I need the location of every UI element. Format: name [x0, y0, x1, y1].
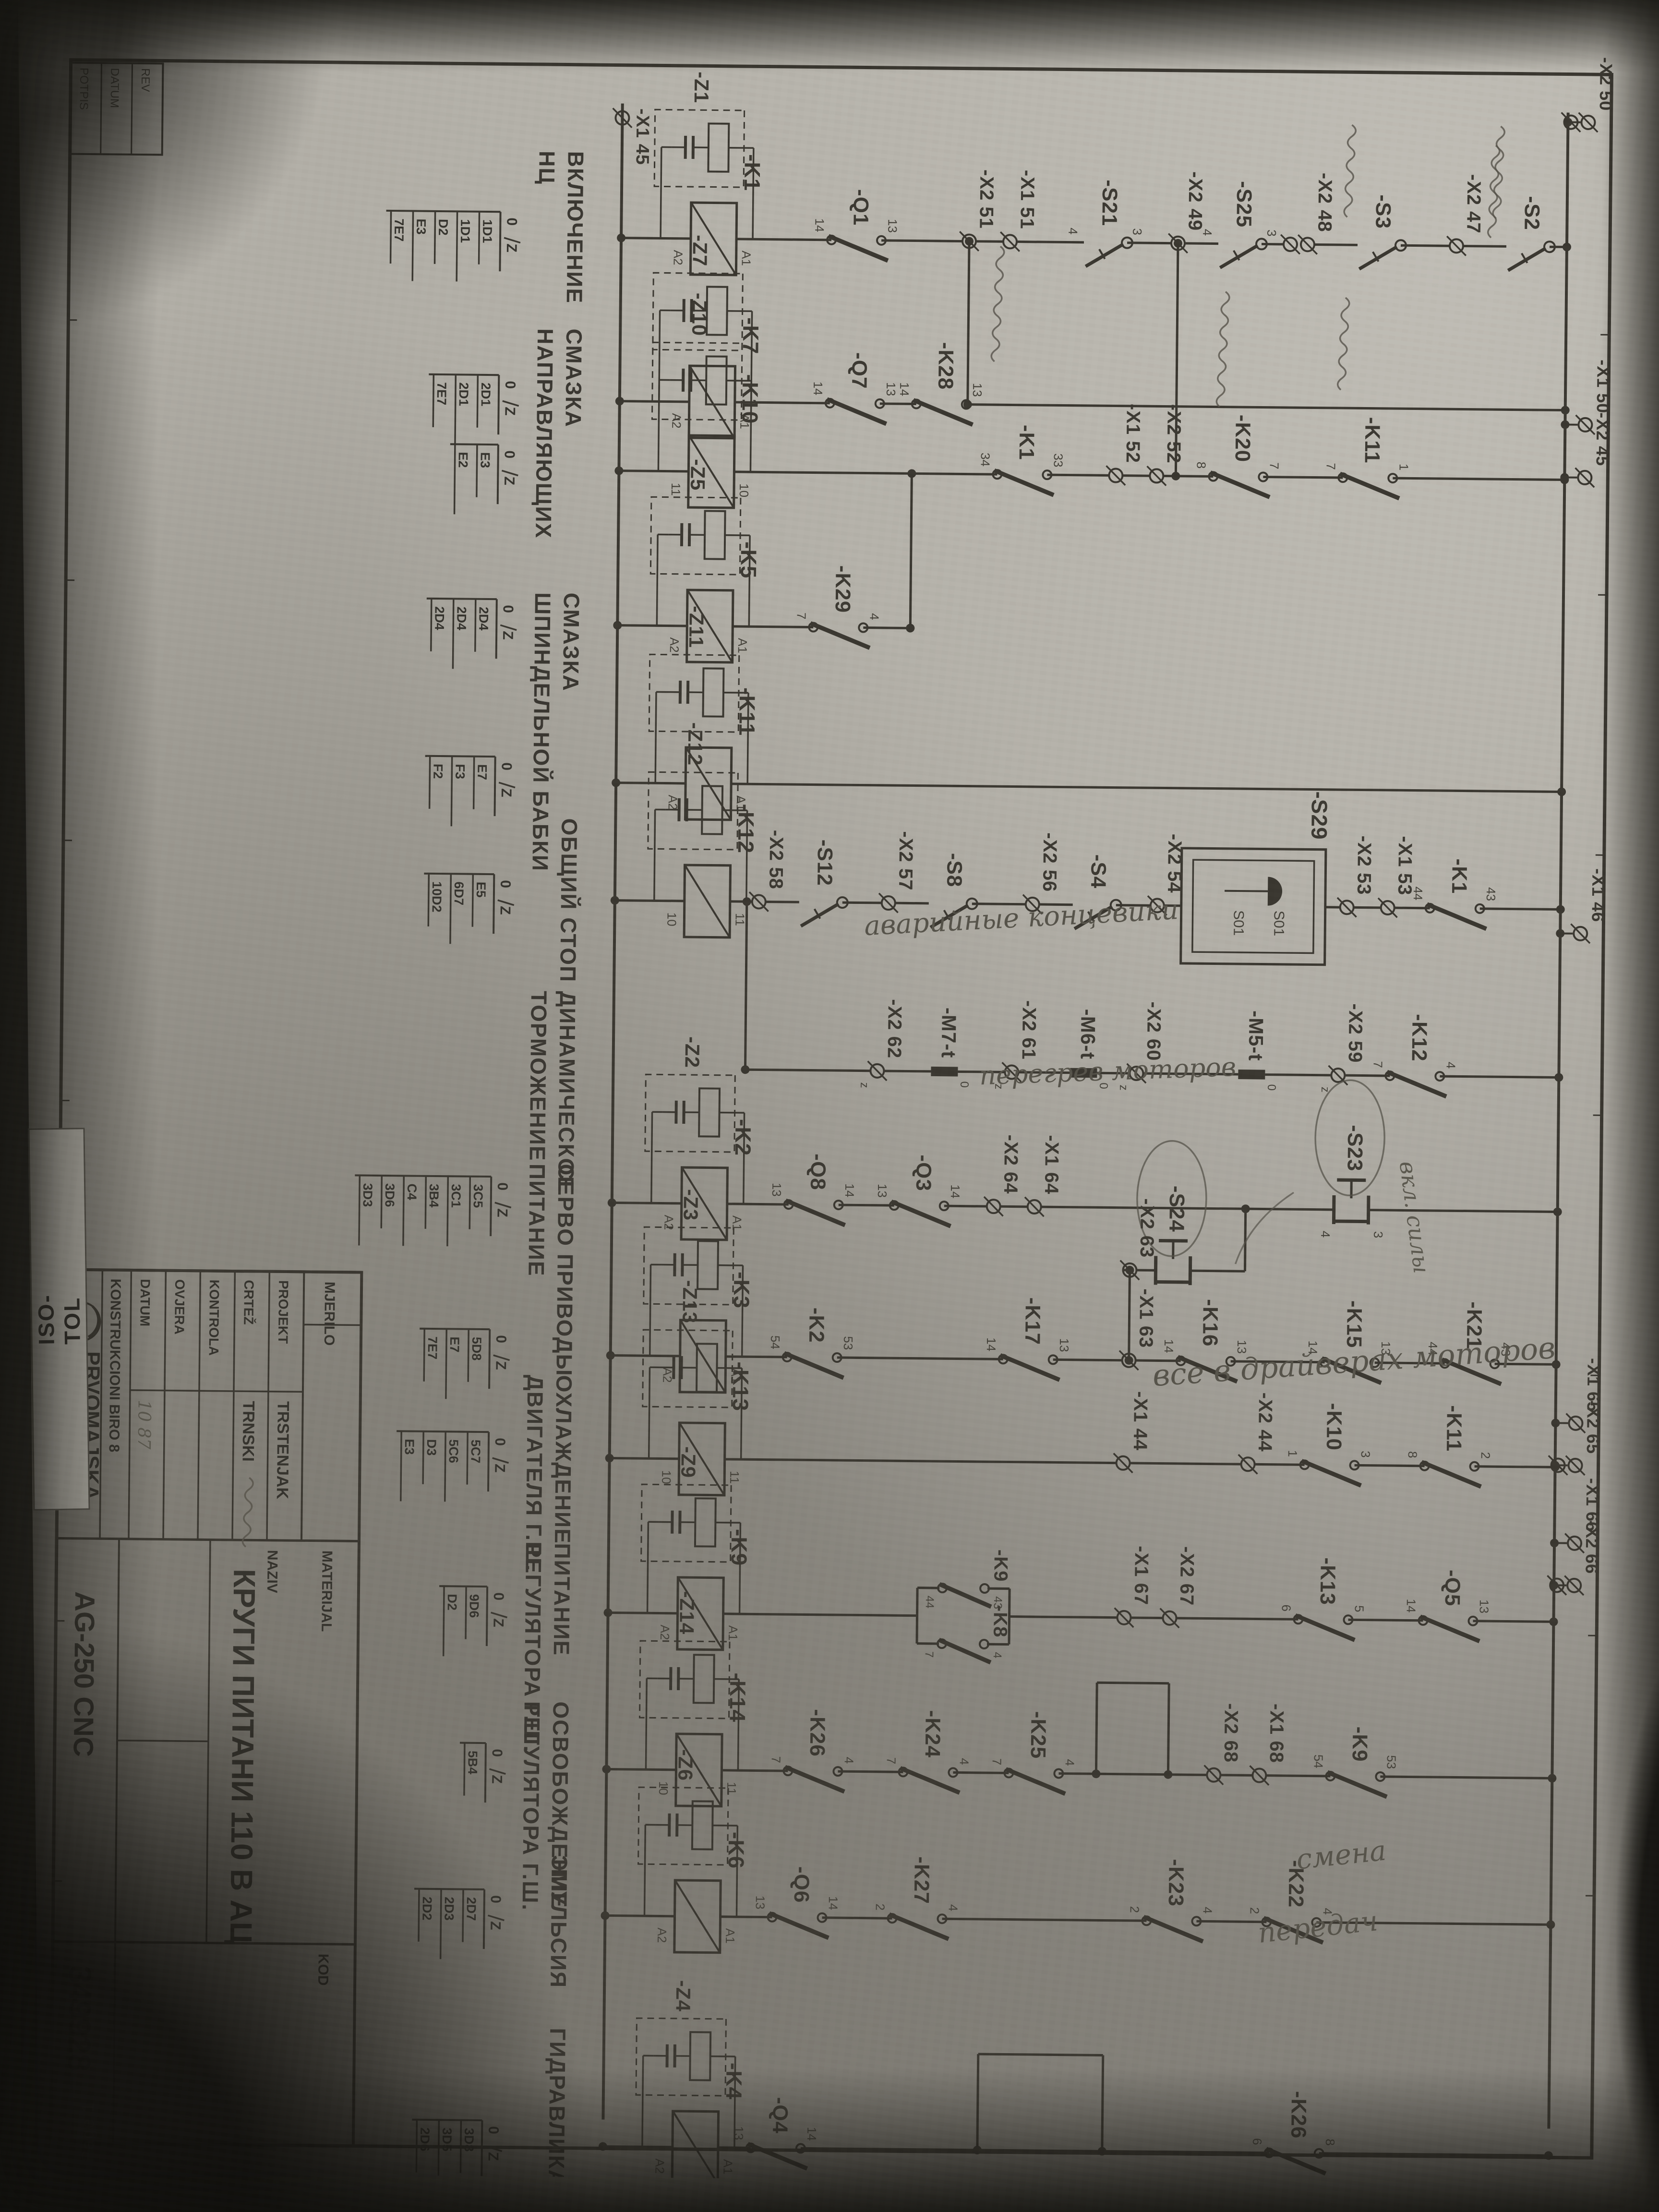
- xref-entry: 2D4: [432, 606, 446, 630]
- wire: [163, 1271, 166, 1539]
- wire: [130, 1390, 303, 1392]
- wire: [1380, 1777, 1552, 1778]
- pin-number: 4: [842, 1757, 856, 1764]
- xref-entry: 1D1: [458, 219, 472, 243]
- junction-dot: [1551, 1419, 1560, 1427]
- pin-number: 7: [923, 1651, 936, 1658]
- pin-number: 5: [1352, 1605, 1367, 1612]
- xref-entry: 3D3: [361, 1183, 375, 1207]
- wire: [450, 444, 498, 445]
- terminal-label: -X2 48: [1314, 173, 1335, 232]
- junction-dot: [606, 1351, 615, 1359]
- wire: [493, 1458, 509, 1463]
- terminal-label: -X2 61: [1018, 1000, 1040, 1060]
- wire: [1220, 1775, 1252, 1776]
- wire: [1047, 475, 1109, 475]
- component-label: -S12: [813, 840, 837, 886]
- xref-entry: 3C1: [449, 1184, 463, 1208]
- component-label: -K11: [1360, 417, 1384, 463]
- wire: [736, 239, 831, 240]
- component-label: -S8: [942, 853, 966, 888]
- wire: [658, 380, 659, 471]
- pin-number: 4: [1066, 228, 1080, 235]
- dome-symbol: [1268, 877, 1283, 906]
- pin-number: 4: [867, 613, 881, 620]
- wire: [460, 1743, 486, 1743]
- coil-diagonal: [674, 1880, 721, 1953]
- wire: [606, 1769, 676, 1769]
- suppressor-label: -Z12: [684, 722, 707, 766]
- wire: [446, 1329, 446, 1399]
- pin-number: 2: [1479, 1452, 1493, 1459]
- wire: [654, 809, 655, 901]
- pin-number: 13: [970, 383, 985, 397]
- suppressor-resistor: [690, 2032, 710, 2080]
- junction-dot: [601, 1911, 609, 1920]
- xref-entry: 2D1: [479, 383, 493, 407]
- wire: [726, 1357, 787, 1357]
- group-header-line1: ОБЩИЙ СТОП: [555, 818, 582, 983]
- stub-terminal-label: -X2 66: [1582, 1520, 1602, 1574]
- wire: [469, 1177, 470, 1229]
- pin-number: 54: [768, 1335, 782, 1349]
- xref-entry: 7E7: [392, 218, 406, 241]
- wire: [657, 534, 658, 625]
- switch-lever: [1220, 245, 1258, 268]
- wire: [842, 902, 882, 903]
- xref-header: Z: [487, 1921, 503, 1930]
- pb-plunger: [1159, 1240, 1188, 1241]
- handwritten-squiggle: [1216, 292, 1229, 407]
- rail-stub-terminal: -X2 50: [1561, 57, 1616, 132]
- wire: [401, 1431, 401, 1501]
- pin-number: 44: [923, 1596, 936, 1609]
- wire: [455, 444, 455, 514]
- schematic-svg: REVDATUMPOTPIS-X1 45-X2 50-X1 50-X2 45-X…: [22, 31, 1641, 2187]
- wire: [615, 901, 685, 901]
- wire: [455, 374, 456, 445]
- suppressor-label: -Z11: [685, 606, 708, 648]
- wire: [617, 625, 687, 626]
- wire: [977, 2054, 978, 2150]
- pin-number: 34: [978, 453, 993, 467]
- wire: [1196, 1921, 1266, 1922]
- wire: [733, 626, 813, 627]
- xref-entry: 3D6: [383, 1183, 397, 1207]
- wire: [301, 1540, 359, 1541]
- suppressor-label: -Z5: [686, 459, 709, 491]
- coil-pin: A2: [652, 2158, 667, 2174]
- cross-reference-table: 0Z5D8E77E7: [419, 1329, 510, 1400]
- pin-number: 2: [1248, 1907, 1262, 1914]
- cross-reference-table: 0Z1D11D1D2E37E7: [385, 211, 520, 282]
- wire: [500, 625, 517, 630]
- contact-slash: [784, 1353, 843, 1378]
- terminal-label: -X2 51: [975, 169, 997, 229]
- pin-number: 14: [805, 2127, 819, 2141]
- wire: [740, 1523, 741, 1614]
- junction-dot: [1241, 1204, 1250, 1213]
- junction-dot: [1550, 1539, 1559, 1547]
- stub-terminal-label: -X2 50: [1596, 57, 1616, 111]
- wire: [113, 1942, 115, 2144]
- jumper-wire: [906, 469, 916, 632]
- junction-dot: [612, 778, 620, 787]
- junction-dot: [1550, 1581, 1558, 1589]
- wire: [499, 782, 515, 787]
- wire: [610, 1458, 679, 1459]
- wire: [881, 240, 962, 241]
- component-label: -S2: [1520, 196, 1544, 230]
- wire: [301, 1272, 304, 1540]
- terminal-label: -X2 57: [895, 831, 916, 890]
- wire: [1163, 476, 1213, 476]
- pin-number: 13: [1477, 1599, 1491, 1613]
- revision-label: POTPIS: [77, 68, 91, 110]
- wire: [491, 1177, 491, 1236]
- suppressor-resistor: [692, 1801, 713, 1849]
- group-header-line2: НЦ: [534, 151, 560, 185]
- pin-number: 2: [873, 1903, 888, 1911]
- wire: [117, 1741, 208, 1742]
- handwritten-squiggle: [242, 1478, 253, 1547]
- wire: [747, 693, 748, 784]
- wire: [1102, 2055, 1103, 2151]
- wire: [753, 148, 754, 239]
- kontrola-label: KONTROLA: [206, 1279, 222, 1356]
- xref-header: Z: [493, 1361, 508, 1370]
- xref-entry: E3: [402, 1439, 417, 1455]
- wire: [646, 1678, 647, 1769]
- wire: [1102, 2151, 1269, 2152]
- wire: [463, 1889, 463, 1942]
- kod-label: KOD: [315, 1954, 331, 1986]
- component-label: -K20: [1231, 414, 1255, 462]
- pin-number: 7: [769, 1756, 783, 1763]
- xref-header: 0: [502, 450, 517, 458]
- wire: [498, 375, 499, 434]
- wire: [412, 2120, 482, 2120]
- group-header-line2: ШПИНДЕЛЬНОЙ БАБКИ: [528, 592, 555, 872]
- wire: [498, 445, 498, 504]
- component-label: -K2: [805, 1307, 829, 1343]
- pin-number: 13: [1057, 1338, 1071, 1352]
- xref-entry: F2: [431, 764, 445, 779]
- pin-number: 14: [984, 1337, 998, 1351]
- xref-entry: 2D6: [418, 2128, 432, 2152]
- wire: [944, 1206, 987, 1206]
- wire: [504, 238, 520, 242]
- wire: [734, 472, 997, 474]
- xref-header: Z: [494, 1208, 510, 1217]
- xref-entry: 6D7: [452, 881, 466, 905]
- wire: [1190, 1271, 1245, 1271]
- contact-slash: [939, 1584, 991, 1607]
- terminal-label: -X1 68: [1266, 1704, 1287, 1763]
- wire: [1168, 1775, 1207, 1775]
- wire: [953, 1772, 1009, 1773]
- wire: [198, 1271, 200, 1539]
- wire: [496, 599, 497, 659]
- pin-number: 14: [812, 218, 827, 232]
- limit-switch-box: [1181, 848, 1326, 965]
- component-label: -S23: [1343, 1125, 1367, 1171]
- pin-number: 7: [884, 1757, 899, 1765]
- wire: [978, 2054, 1103, 2055]
- crtez-value: TRNSKI: [239, 1401, 258, 1462]
- pin-number: 7: [990, 1758, 1004, 1766]
- wire: [651, 1112, 652, 1203]
- box-inner-label: S01: [1230, 910, 1247, 936]
- revision-table: REVDATUMPOTPIS: [70, 63, 163, 155]
- pin-number: 7: [1371, 1061, 1385, 1068]
- suppressor-resistor: [702, 786, 722, 834]
- contact-slash: [889, 1914, 949, 1939]
- wire: [424, 1329, 424, 1382]
- xref-header: 0: [492, 1438, 508, 1446]
- component-label: -K28: [934, 342, 958, 390]
- wire: [460, 2120, 461, 2173]
- terminal-label: -X2 53: [1353, 835, 1375, 895]
- thermal-contact: [931, 1067, 958, 1077]
- coil-diagonal: [684, 865, 730, 938]
- wire: [822, 1918, 892, 1918]
- branch--K13: -K1128-K1031-X2 44-X1 44-K131110-Z13: [605, 1279, 1561, 1503]
- wire: [1058, 1774, 1168, 1775]
- xref-header: 0: [494, 1182, 510, 1190]
- wire: [484, 1889, 484, 1949]
- wire: [412, 211, 413, 281]
- wire: [487, 1587, 487, 1646]
- suppressor-resistor: [703, 668, 724, 716]
- contact-slash: [1000, 1355, 1059, 1380]
- xref-entry: 7E7: [425, 1336, 440, 1359]
- wire: [839, 1205, 894, 1205]
- wire: [942, 1919, 1146, 1921]
- wire: [721, 1917, 772, 1917]
- terminal-label: -X1 51: [1016, 170, 1038, 229]
- component-label: -K16: [1198, 1299, 1222, 1347]
- contact-slash: [1420, 1617, 1479, 1641]
- cross-reference-table: 0Z5B4: [459, 1743, 506, 1803]
- wire: [1395, 908, 1430, 908]
- wire: [1266, 1776, 1330, 1776]
- wire: [650, 1264, 651, 1356]
- group-header-line1: ЭМУЛЬСИЯ: [546, 1855, 572, 1988]
- naziv-label: NAZIV: [264, 1550, 280, 1593]
- component-label: -M7-t: [938, 1008, 961, 1058]
- wire: [731, 784, 1562, 792]
- xref-entry: E3: [478, 452, 492, 468]
- wire: [477, 445, 477, 497]
- pb-bridge: [1155, 1282, 1190, 1282]
- machine-model: AG-250 CNC: [68, 1591, 100, 1757]
- wire: [1348, 1620, 1423, 1620]
- pin-number: 14: [826, 1896, 841, 1910]
- wire: [57, 1538, 301, 1540]
- terminal-label: -X1 64: [1041, 1135, 1062, 1194]
- wire: [880, 404, 916, 404]
- xref-header: Z: [504, 243, 519, 252]
- handwritten-squiggle: [1344, 125, 1356, 217]
- contact-slash: [900, 1768, 960, 1792]
- wire: [620, 401, 689, 402]
- wire: [745, 902, 746, 1070]
- wire: [1017, 242, 1084, 242]
- xref-header: 0: [493, 1335, 509, 1343]
- coil-pin: 11: [669, 483, 683, 496]
- cross-reference-table: 0Z3C53C13B4C43D63D3: [354, 1175, 511, 1247]
- pin-number: 6: [1279, 1604, 1294, 1611]
- revision-label: REV: [139, 68, 152, 92]
- group-header-line2: РЕГУЛЯТОРА Г.Ш.: [518, 1701, 545, 1911]
- wire: [424, 874, 494, 874]
- terminal-label: -X2 52: [1163, 404, 1185, 464]
- xref-entry: D2: [436, 219, 450, 236]
- pin-number: 8: [1194, 462, 1209, 469]
- wire: [612, 1203, 682, 1203]
- cross-reference-table: 0Z9D6D2: [439, 1586, 507, 1657]
- pin-number: 6: [1250, 2138, 1264, 2145]
- wire: [475, 599, 476, 652]
- terminal-label: -X2 58: [765, 830, 787, 890]
- pin-number: 4: [1318, 1231, 1333, 1238]
- wire: [488, 1432, 489, 1491]
- group-header-line2: НАПРАВЛЯЮЩИХ: [531, 328, 558, 539]
- component-label: -S24: [1165, 1186, 1189, 1232]
- wire: [1401, 245, 1450, 246]
- wire: [744, 1113, 745, 1204]
- wire: [1097, 1683, 1169, 1683]
- component-label: -M5-t: [1245, 1010, 1268, 1061]
- title-block: MJERILOMATERIJALKODNAZIVPROJEKTTRSTENJAK…: [51, 1269, 361, 2146]
- terminal-label: -X1 63: [1135, 1288, 1157, 1348]
- jumper-wire: [1125, 1266, 1134, 1365]
- coil-pin: A1: [726, 1625, 740, 1641]
- contact-slash: [829, 236, 888, 261]
- xref-entry: 3C5: [471, 1184, 485, 1208]
- stub-terminal-label: -X1 50: [1593, 360, 1613, 413]
- wire: [435, 211, 435, 264]
- drawing-title: КРУГИ ПИТАНИ 110 В АЦ: [224, 1569, 262, 1945]
- iso-tol-label: ISO-TOL: [33, 1293, 85, 1345]
- pin-number: 4: [1063, 1759, 1077, 1766]
- contact-slash: [1266, 2149, 1325, 2174]
- xref-header: 0: [485, 2126, 501, 2134]
- terminal-label: -X2 67: [1176, 1546, 1198, 1606]
- schematic-sheet: REVDATUMPOTPIS-X1 45-X2 50-X1 50-X2 45-X…: [22, 31, 1641, 2187]
- coil-pin: A1: [723, 1928, 737, 1944]
- wire: [725, 1459, 1117, 1463]
- component-label: -K13: [1316, 1557, 1340, 1605]
- wire: [734, 2056, 735, 2148]
- coil-pin: A1: [739, 251, 754, 266]
- pin-number: 3: [1371, 1231, 1385, 1238]
- pin-number: 4: [957, 1758, 972, 1765]
- sheet-annotations: вкл. силы: [983, 141, 1500, 1275]
- pin-number: 3: [1264, 229, 1279, 237]
- datum-value: 10 87: [134, 1400, 154, 1450]
- projekt-label: PROJEKT: [276, 1280, 291, 1344]
- wire: [603, 2146, 673, 2147]
- group-header-line1: ПИТАНИЕ: [549, 1543, 575, 1656]
- wire: [445, 1431, 445, 1502]
- group-header-line1: ОХЛАЖДЕНИЕ: [550, 1375, 577, 1544]
- wire: [621, 238, 691, 239]
- wire: [451, 756, 452, 826]
- component-label: -S4: [1086, 854, 1110, 889]
- wire: [884, 1071, 931, 1071]
- suppressor-resistor: [708, 123, 729, 171]
- wire: [493, 1355, 510, 1360]
- wire: [1245, 1209, 1245, 1271]
- xref-header: Z: [500, 631, 516, 640]
- junction-dot: [615, 397, 624, 406]
- wire: [837, 1358, 1003, 1359]
- pin-number: 1: [1396, 464, 1411, 471]
- suppressor-label: -Z13: [678, 1280, 701, 1324]
- contact-slash: [1006, 1769, 1065, 1793]
- pin-number: 3: [1358, 1451, 1373, 1458]
- contact-slash: [1301, 1461, 1361, 1485]
- component-label: -K10: [1322, 1403, 1346, 1451]
- pb-bridge: [1334, 1221, 1368, 1222]
- component-label: -K17: [1021, 1297, 1045, 1345]
- wire: [723, 1614, 901, 1616]
- pin-number: 13: [753, 1896, 768, 1910]
- wire: [746, 810, 747, 902]
- wire: [414, 1889, 484, 1889]
- contact-slash: [1210, 472, 1270, 497]
- wire: [498, 900, 514, 905]
- pin-number: 4: [1201, 1907, 1215, 1914]
- xref-entry: E5: [474, 882, 488, 898]
- branch--K14: -K95354-X1 68-X2 68-K2547-K2447-K2647-K1…: [602, 1590, 1558, 1814]
- wire: [381, 1176, 382, 1228]
- pin-number: 13: [885, 219, 900, 233]
- component-label: -K9: [1348, 1726, 1372, 1762]
- wire: [976, 241, 1003, 242]
- cross-reference-table: 0ZE3E2: [450, 444, 518, 515]
- wire: [453, 599, 453, 669]
- pin-number: 0: [958, 1081, 971, 1088]
- wire: [750, 381, 751, 472]
- wire: [433, 374, 433, 427]
- branch--K11: -K11A1A2-Z11: [611, 605, 1567, 828]
- pin-number: 14: [1162, 1339, 1176, 1353]
- xref-entry: 3B4: [427, 1184, 441, 1208]
- junction-dot: [614, 467, 623, 475]
- wire: [766, 902, 799, 902]
- component-label: -S21: [1097, 180, 1121, 226]
- cross-reference-table: 0Z2D42D42D4: [426, 599, 517, 670]
- bottom-rail: [603, 104, 622, 2120]
- wire: [502, 470, 518, 475]
- wire: [1369, 1210, 1558, 1212]
- contact-slash: [994, 470, 1054, 495]
- wire: [132, 63, 132, 155]
- stub-terminal-label: -X2 65: [1583, 1400, 1603, 1454]
- junction-dot: [603, 1608, 612, 1617]
- cross-reference-table: 0Z5C75C6D3E3: [396, 1431, 509, 1502]
- terminal-label: -X2 63: [1136, 1198, 1158, 1258]
- wire: [416, 2120, 417, 2173]
- wire: [397, 1431, 489, 1432]
- terminal-label: -X1 44: [1130, 1391, 1151, 1451]
- wire: [391, 211, 391, 264]
- pin-number: 53: [841, 1336, 855, 1350]
- wire: [863, 628, 910, 628]
